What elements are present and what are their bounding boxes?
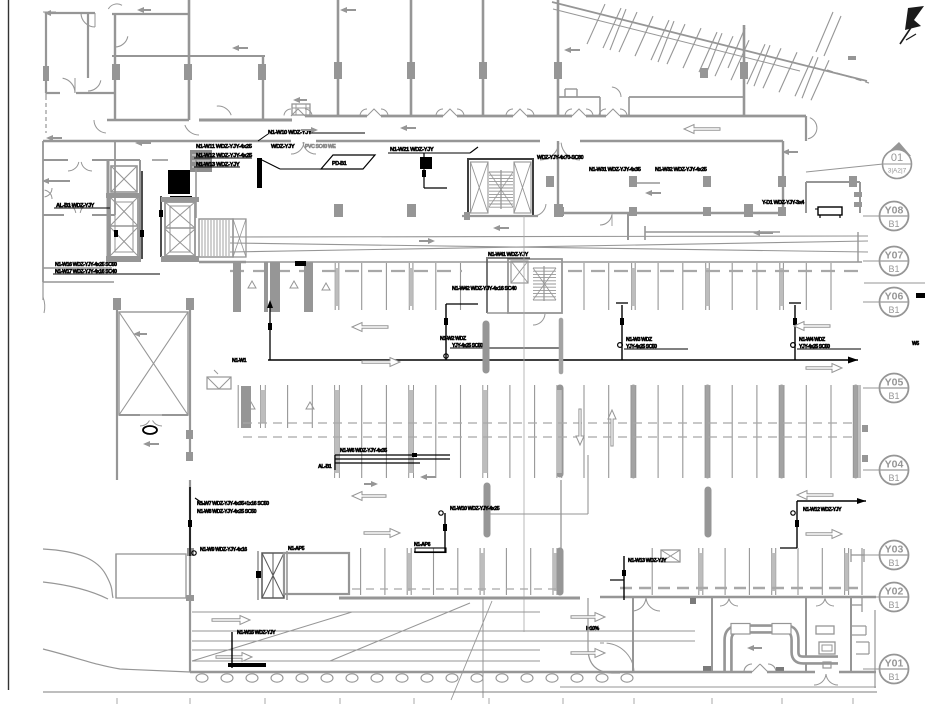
svg-text:Y-D1 WDZ-YJY-3x4: Y-D1 WDZ-YJY-3x4	[762, 200, 804, 206]
svg-text:Y05: Y05	[885, 377, 904, 389]
svg-text:N1-W13 WDZ-YJY: N1-W13 WDZ-YJY	[628, 558, 667, 564]
svg-text:Y03: Y03	[885, 544, 904, 556]
svg-text:B1: B1	[888, 672, 899, 682]
svg-text:N1-W1: N1-W1	[232, 358, 247, 364]
svg-text:N1-W6 WDZ-YJY-4x35: N1-W6 WDZ-YJY-4x35	[340, 448, 387, 454]
svg-text:N1-W32 WDZ-YJY-4x25: N1-W32 WDZ-YJY-4x25	[655, 167, 707, 173]
svg-text:B1: B1	[888, 264, 899, 274]
svg-text:N1-W10 WDZ-YJY-4x25: N1-W10 WDZ-YJY-4x25	[450, 506, 500, 512]
svg-text:N1-W8 WDZ-YJY-4x25 SC50: N1-W8 WDZ-YJY-4x25 SC50	[197, 509, 257, 515]
svg-text:N1-AP5: N1-AP5	[288, 546, 305, 552]
svg-text:WDZ-YJY-4x70-SC80: WDZ-YJY-4x70-SC80	[537, 155, 584, 161]
svg-text:N1-W3 WDZ: N1-W3 WDZ	[626, 337, 653, 343]
svg-text:N1-W21 WDZ-YJY: N1-W21 WDZ-YJY	[390, 147, 434, 153]
svg-text:N1-AP6: N1-AP6	[414, 542, 431, 548]
svg-text:B1: B1	[888, 600, 899, 610]
svg-text:N1-W2 WDZ: N1-W2 WDZ	[440, 336, 467, 342]
svg-text:W5: W5	[912, 341, 919, 347]
svg-text:N1-W11 WDZ-YJY-4x25: N1-W11 WDZ-YJY-4x25	[196, 144, 253, 150]
svg-text:B1: B1	[888, 558, 899, 568]
svg-text:AL-B1: AL-B1	[318, 464, 332, 470]
svg-text:B1: B1	[888, 473, 899, 483]
svg-text:N1-W12 WDZ-YJY: N1-W12 WDZ-YJY	[803, 507, 842, 513]
svg-text:N1-W31 WDZ-YJY-4x35: N1-W31 WDZ-YJY-4x35	[589, 167, 641, 173]
svg-text:Y07: Y07	[885, 250, 904, 262]
svg-text:N1-W15 WDZ-YJY: N1-W15 WDZ-YJY	[237, 630, 276, 636]
svg-text:B1: B1	[888, 391, 899, 401]
svg-text:N1-W42 WDZ-YJY-4x16 SC40: N1-W42 WDZ-YJY-4x16 SC40	[452, 286, 517, 292]
svg-text:N1-W4 WDZ: N1-W4 WDZ	[799, 337, 826, 343]
svg-text:01: 01	[891, 152, 903, 164]
svg-text:N1-W7 WDZ-YJY-4x35+1x16 SC50: N1-W7 WDZ-YJY-4x35+1x16 SC50	[197, 501, 269, 507]
svg-text:Y06: Y06	[885, 291, 904, 303]
svg-text:3|A2|7: 3|A2|7	[888, 168, 907, 175]
svg-text:WDZ-YJY: WDZ-YJY	[271, 144, 295, 150]
svg-text:B1: B1	[888, 305, 899, 315]
svg-text:Y04: Y04	[885, 459, 904, 471]
svg-text:Y08: Y08	[885, 205, 904, 217]
svg-text:Y01: Y01	[885, 658, 904, 670]
svg-text:N1-W16 WDZ-YJY-4x25 SC50: N1-W16 WDZ-YJY-4x25 SC50	[55, 262, 117, 268]
svg-text:PVC SC40 WE: PVC SC40 WE	[305, 144, 336, 150]
svg-text:Y02: Y02	[885, 586, 904, 598]
svg-text:PD-B1: PD-B1	[332, 161, 347, 167]
svg-text:N1-W9 WDZ-YJY-4x16: N1-W9 WDZ-YJY-4x16	[200, 547, 247, 553]
svg-text:N1-W41 WDZ-YJY: N1-W41 WDZ-YJY	[488, 252, 529, 258]
svg-text:B1: B1	[888, 219, 899, 229]
